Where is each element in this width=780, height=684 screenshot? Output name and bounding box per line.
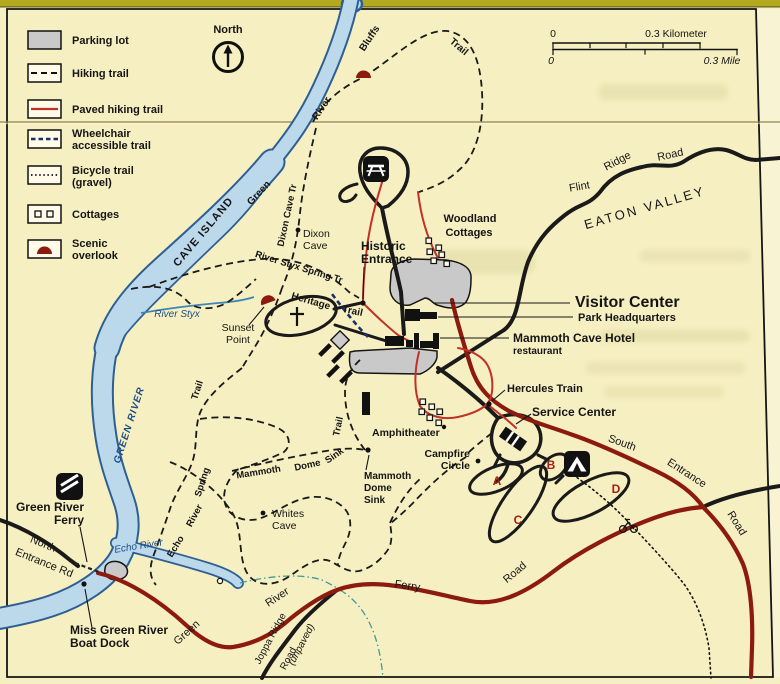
camp-loop-b-label: B [547, 458, 556, 472]
cottages-swatch [28, 205, 61, 223]
ferry-icon [56, 473, 83, 500]
legend-label: Bicycle trail [72, 165, 134, 177]
sunset-point-label: Point [226, 334, 250, 346]
legend-label: Parking lot [72, 35, 129, 47]
spring-circle [217, 578, 222, 583]
scale-mile-start: 0 [548, 55, 554, 67]
historic-entrance-dot [360, 300, 365, 305]
green-river-ferry-label: Ferry [54, 513, 84, 527]
hotel-parking [349, 348, 437, 374]
park-headquarters-label: Park Headquarters [578, 312, 676, 324]
legend-label: accessible trail [72, 140, 151, 152]
dixon-cave-label: Cave [303, 240, 328, 252]
ghost-text-blob [598, 84, 728, 100]
legend-label: (gravel) [72, 177, 112, 189]
scale-km-start: 0 [550, 28, 556, 40]
cottages-swatch-square [47, 211, 53, 217]
hotel-building [406, 340, 413, 347]
boat-dock-label: Boat Dock [70, 636, 130, 650]
visitor-center-building [405, 309, 420, 321]
whites-cave-dot [261, 511, 266, 516]
campfire-circle-dot [476, 459, 481, 464]
scale-km-end: 0.3 Kilometer [645, 28, 707, 40]
amphitheater-dot [442, 425, 446, 429]
ghost-text-blob [604, 386, 724, 398]
tent-icon [564, 451, 590, 477]
picnic-table-icon [363, 156, 389, 182]
map-page: Green River Bluffs Trail CAVE ISLAND Dix… [0, 0, 780, 684]
amphitheater-building [362, 392, 370, 415]
hotel-building [385, 336, 404, 346]
cottages-swatch-square [35, 211, 41, 217]
legend-label: Cottages [72, 209, 119, 221]
dixon-cave-dot [296, 228, 301, 233]
camp-loop-d-label: D [612, 482, 621, 496]
top-fold-strip [0, 0, 780, 6]
hotel-building [414, 333, 419, 349]
north-label: North [213, 24, 243, 36]
ghost-text-blob [586, 362, 746, 374]
legend-label: Hiking trail [72, 68, 129, 80]
dixon-cave-label: Dixon [303, 228, 330, 240]
service-center-label: Service Center [532, 405, 616, 419]
amphitheater-label: Amphitheater [372, 427, 440, 439]
whites-cave-label: Cave [272, 520, 297, 532]
legend-label: overlook [72, 250, 119, 262]
legend-label: Paved hiking trail [72, 104, 163, 116]
hotel-building [420, 341, 433, 348]
visitor-center-wing [420, 312, 437, 319]
woodland-cottages-label: Woodland [444, 213, 497, 225]
ghost-text-blob [640, 250, 750, 262]
whites-cave-label: Whites [272, 508, 304, 520]
boat-dock-label: Miss Green River [70, 623, 168, 637]
scale-mile-end: 0.3 Mile [704, 55, 741, 67]
legend-label: Scenic [72, 238, 107, 250]
campfire-circle-label: Circle [441, 460, 470, 472]
visitor-center-label: Visitor Center [575, 294, 680, 311]
restaurant-label: restaurant [513, 346, 563, 357]
hercules-train-dot [486, 401, 491, 406]
dome-sink-label: Mammoth [364, 471, 411, 482]
historic-entrance-label: Entrance [361, 252, 413, 266]
hotel-label: Mammoth Cave Hotel [513, 331, 635, 345]
legend-label: Wheelchair [72, 128, 131, 140]
dome-sink-label: Sink [364, 495, 386, 506]
sunset-point-label: Sunset [222, 322, 255, 334]
hercules-train-label: Hercules Train [507, 383, 583, 395]
park-map: Green River Bluffs Trail CAVE ISLAND Dix… [0, 0, 780, 684]
historic-entrance-label: Historic [361, 239, 406, 253]
dome-sink-label: Dome [364, 483, 392, 494]
campfire-circle-label: Campfire [424, 448, 470, 460]
parking-lot-swatch [28, 31, 61, 49]
green-river-ferry-label: Green River [16, 500, 84, 514]
camp-loop-c-label: C [514, 513, 523, 527]
mammoth-dome-sink-dot [365, 447, 370, 452]
river-styx-label: River Styx [154, 309, 201, 320]
hotel-building [433, 333, 439, 349]
woodland-cottages-label: Cottages [445, 227, 492, 239]
camp-loop-a-label: A [493, 474, 502, 488]
boat-dock-dot [81, 581, 86, 586]
